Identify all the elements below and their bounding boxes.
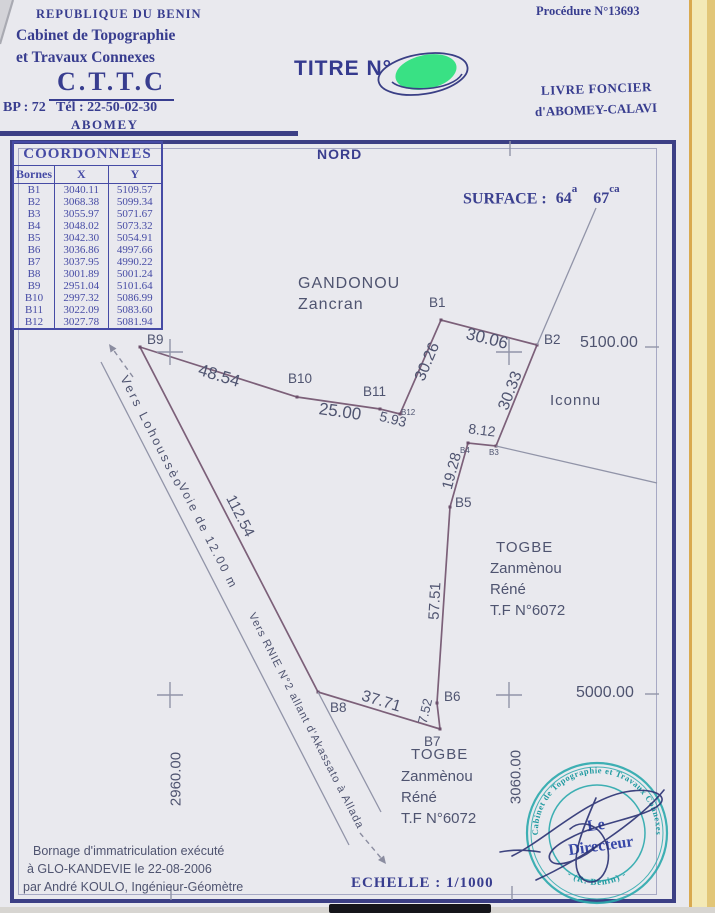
- borne-x: 3036.86: [55, 244, 109, 256]
- borne-id: B10: [14, 292, 55, 304]
- column-header-x: X: [55, 166, 109, 184]
- borne-x: 3022.09: [55, 304, 109, 316]
- borne-label-b1: B1: [429, 295, 446, 310]
- column-header-bornes: Bornes: [14, 166, 55, 184]
- coordinates-table: COORDONNEES Bornes X Y B13040.115109.57 …: [12, 141, 163, 330]
- borne-x: 3068.38: [55, 196, 109, 208]
- borne-id: B2: [14, 196, 55, 208]
- owner-label-rene-1: Réné: [490, 581, 526, 598]
- surface-ca-value: 67: [593, 190, 609, 207]
- grid-label-5000: 5000.00: [576, 684, 634, 702]
- borne-id: B8: [14, 268, 55, 280]
- table-row: B113022.095083.60: [14, 304, 161, 316]
- table-row: B43048.025073.32: [14, 220, 161, 232]
- surface-ca-unit: ca: [609, 183, 619, 195]
- table-row: B13040.115109.57: [14, 184, 161, 197]
- table-row: B73037.954990.22: [14, 256, 161, 268]
- owner-label-tf6072-1: T.F N°6072: [490, 602, 565, 619]
- borne-x: 3048.02: [55, 220, 109, 232]
- borne-x: 3037.95: [55, 256, 109, 268]
- surface-a-value: 64: [556, 190, 572, 207]
- borne-x: 3027.78: [55, 316, 109, 328]
- table-row: B92951.045101.64: [14, 280, 161, 292]
- borne-id: B7: [14, 256, 55, 268]
- table-title: COORDONNEES: [14, 143, 161, 166]
- office-name-line2: et Travaux Connexes: [16, 49, 155, 67]
- table-row: B53042.305054.91: [14, 232, 161, 244]
- owner-label-zanmenou-2: Zanmènou: [401, 768, 473, 785]
- borne-label-b10: B10: [288, 371, 312, 386]
- borne-id: B6: [14, 244, 55, 256]
- borne-id: B4: [14, 220, 55, 232]
- borne-x: 2997.32: [55, 292, 109, 304]
- borne-id: B12: [14, 316, 55, 328]
- borne-y: 5083.60: [108, 304, 161, 316]
- borne-y: 4997.66: [108, 244, 161, 256]
- borne-id: B1: [14, 184, 55, 197]
- table-row: B23068.385099.34: [14, 196, 161, 208]
- borne-x: 3040.11: [55, 184, 109, 197]
- distance-label-b5-b6: 57.51: [426, 582, 445, 620]
- borne-id: B5: [14, 232, 55, 244]
- borne-y: 5073.32: [108, 220, 161, 232]
- office-acronym: C.T.T.C: [49, 67, 174, 101]
- grid-label-3060: 3060.00: [508, 750, 525, 804]
- side-paper-edge: [689, 0, 715, 913]
- photo-background-bar: [329, 904, 491, 913]
- borne-y: 4990.22: [108, 256, 161, 268]
- contact-info: BP : 72 Tél : 22-50-02-30: [3, 100, 157, 116]
- table-header-row: Bornes X Y: [14, 166, 161, 184]
- borne-y: 5086.99: [108, 292, 161, 304]
- borne-y: 5099.34: [108, 196, 161, 208]
- scale-label: ECHELLE : 1/1000: [351, 875, 494, 892]
- borne-y: 5054.91: [108, 232, 161, 244]
- grid-label-5100: 5100.00: [580, 334, 638, 352]
- borne-y: 5071.67: [108, 208, 161, 220]
- borne-y: 5001.24: [108, 268, 161, 280]
- borne-y: 5109.57: [108, 184, 161, 197]
- owner-label-rene-2: Réné: [401, 789, 437, 806]
- borne-label-b5: B5: [455, 495, 472, 510]
- owner-label-zanmenou-1: Zanmènou: [490, 560, 562, 577]
- table-row: B123027.785081.94: [14, 316, 161, 328]
- country-title: REPUBLIQUE DU BENIN: [36, 7, 202, 22]
- cadastral-plan-scan: REPUBLIQUE DU BENIN Cabinet de Topograph…: [0, 0, 715, 913]
- corner-fold: [0, 0, 13, 44]
- header-divider: [0, 131, 298, 136]
- green-marker-blob: [392, 49, 460, 95]
- footer-note-line1: Bornage d'immatriculation exécuté: [33, 844, 224, 858]
- owner-label-zancran: Zancran: [298, 296, 364, 314]
- borne-x: 2951.04: [55, 280, 109, 292]
- north-label: NORD: [317, 146, 362, 162]
- surface-area: SURFACE :64a67ca: [447, 170, 620, 226]
- borne-id: B9: [14, 280, 55, 292]
- surface-a-unit: a: [572, 183, 578, 195]
- column-header-y: Y: [108, 166, 161, 184]
- land-registry-line1: LIVRE FONCIER: [541, 79, 652, 99]
- titre-number-label: TITRE N°: [294, 57, 392, 81]
- borne-label-b11: B11: [363, 384, 386, 399]
- table-row: B102997.325086.99: [14, 292, 161, 304]
- owner-label-gandonou: GANDONOU: [298, 275, 400, 293]
- city-label: ABOMEY: [71, 117, 139, 133]
- table-row: B63036.864997.66: [14, 244, 161, 256]
- borne-label-b3: B3: [489, 448, 499, 457]
- borne-id: B11: [14, 304, 55, 316]
- owner-label-iconnu: Iconnu: [550, 392, 601, 409]
- borne-label-b8: B8: [330, 700, 347, 715]
- borne-label-b6: B6: [444, 689, 461, 704]
- table-row: B33055.975071.67: [14, 208, 161, 220]
- office-name-line1: Cabinet de Topographie: [16, 27, 175, 45]
- grid-label-2960: 2960.00: [168, 752, 185, 806]
- borne-y: 5081.94: [108, 316, 161, 328]
- surface-label: SURFACE :: [463, 190, 547, 207]
- procedure-number: Procédure N°13693: [536, 4, 639, 19]
- land-registry-line2: d'ABOMEY-CALAVI: [535, 100, 658, 120]
- borne-x: 3042.30: [55, 232, 109, 244]
- table-row: B83001.895001.24: [14, 268, 161, 280]
- borne-x: 3001.89: [55, 268, 109, 280]
- footer-note-line3: par André KOULO, Ingénieur-Géomètre: [23, 880, 243, 894]
- owner-label-togbe-2: TOGBE: [411, 746, 468, 763]
- borne-id: B3: [14, 208, 55, 220]
- distance-label-b3-b4: 8.12: [468, 420, 497, 439]
- footer-note-line2: à GLO-KANDEVIE le 22-08-2006: [27, 862, 212, 876]
- borne-y: 5101.64: [108, 280, 161, 292]
- owner-label-tf6072-2: T.F N°6072: [401, 810, 476, 827]
- owner-label-togbe-1: TOGBE: [496, 539, 553, 556]
- borne-label-b9: B9: [147, 332, 164, 347]
- borne-label-b2: B2: [544, 332, 561, 347]
- borne-x: 3055.97: [55, 208, 109, 220]
